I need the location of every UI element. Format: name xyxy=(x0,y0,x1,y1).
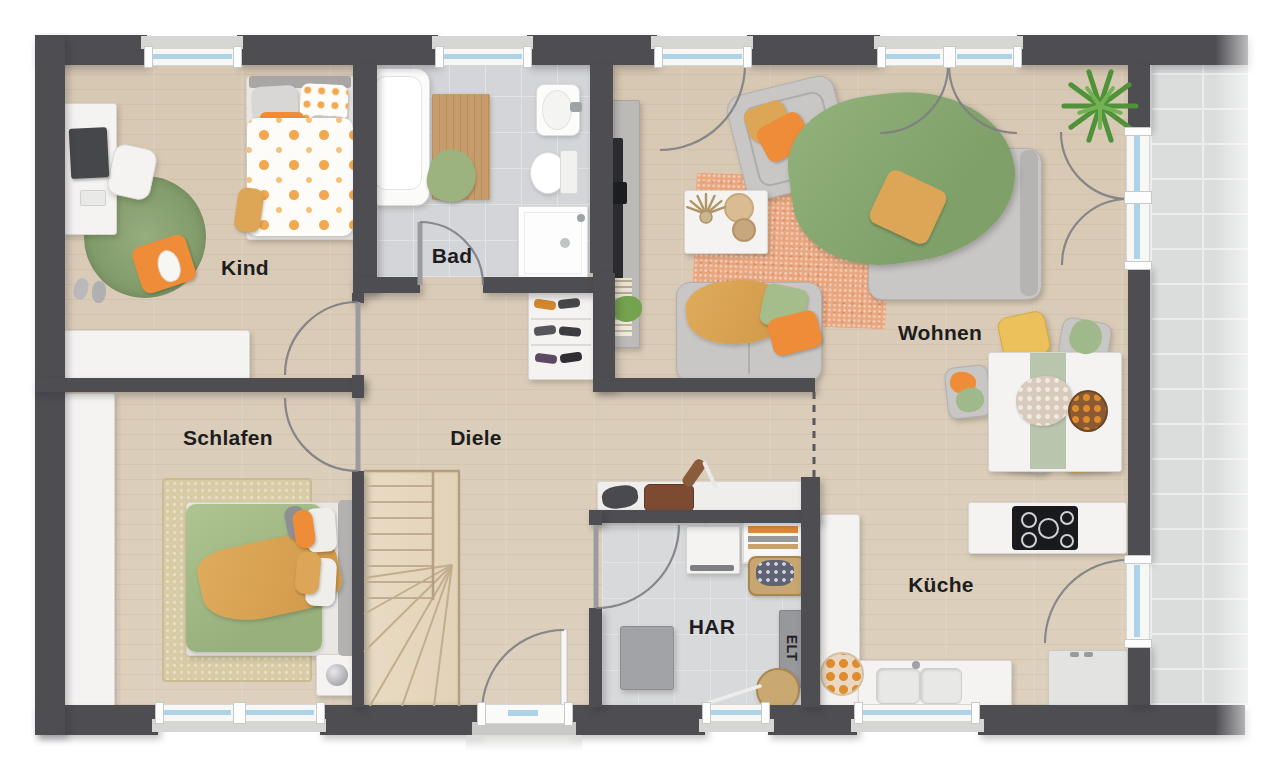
window-glass xyxy=(443,54,522,59)
door-glass xyxy=(662,54,742,59)
window-cap xyxy=(155,702,164,724)
shoe-shelf-line xyxy=(531,344,591,346)
wall-bad-south xyxy=(353,277,420,293)
wall xyxy=(1128,643,1150,705)
floor-plan: Kind Bad Wohnen Schlafen Diele HAR ELT K… xyxy=(0,0,1288,768)
laundry-gray xyxy=(748,536,798,542)
wall-kind-bad xyxy=(353,65,377,293)
window-glass xyxy=(957,54,1012,59)
sofa-backrest xyxy=(1020,150,1038,296)
wall-kind-schlafen xyxy=(35,378,364,392)
window-cap xyxy=(877,46,886,68)
wall xyxy=(320,705,480,735)
window-cap xyxy=(144,46,153,68)
wall xyxy=(768,705,857,735)
sink-basin xyxy=(542,90,572,130)
window-glass xyxy=(710,710,763,715)
utility-cabinet xyxy=(620,626,674,690)
burner xyxy=(1060,534,1074,548)
window-cap xyxy=(1124,555,1152,564)
wall xyxy=(237,35,438,65)
terrace-fade xyxy=(1215,0,1288,768)
window-cap xyxy=(477,702,486,726)
wall-bad-wohnen xyxy=(590,65,613,273)
fruit-bowl-table xyxy=(1068,390,1108,432)
laundry-orange xyxy=(748,526,798,533)
window-cap xyxy=(1124,261,1152,270)
entrance-step xyxy=(466,735,582,751)
window-mullion xyxy=(233,702,246,724)
shoe-shelf-line xyxy=(531,318,591,320)
kind-sideboard xyxy=(63,330,250,380)
shower-head xyxy=(577,214,585,222)
entrance-threshold xyxy=(472,722,576,736)
toilet-tank xyxy=(560,150,578,194)
room-label-kueche: Küche xyxy=(908,573,974,597)
table-lamp xyxy=(326,664,348,686)
handbag xyxy=(644,484,694,512)
window-glass xyxy=(862,710,973,715)
window-cap xyxy=(316,702,325,724)
dishwasher-handle xyxy=(1070,652,1079,657)
door-glass xyxy=(1134,136,1140,191)
entrance-door-glass xyxy=(508,710,538,716)
staircase xyxy=(364,470,460,706)
room-label-diele: Diele xyxy=(450,426,502,450)
shower-tray-inner xyxy=(524,212,582,274)
wall xyxy=(1128,65,1150,130)
fruit-bowl xyxy=(820,652,864,696)
wall xyxy=(527,35,657,65)
door-handles xyxy=(1124,191,1152,204)
wall xyxy=(978,705,1245,735)
desk-monitor xyxy=(69,127,110,179)
window-cap xyxy=(523,46,532,68)
room-label-har: HAR xyxy=(689,615,735,639)
burner xyxy=(1021,532,1037,548)
door-glass xyxy=(1134,565,1140,637)
wall xyxy=(568,705,705,735)
window-glass xyxy=(246,710,314,715)
shoe xyxy=(559,326,582,337)
dishwasher xyxy=(1048,650,1128,709)
window-cap xyxy=(233,46,242,68)
window-glass xyxy=(885,54,940,59)
wall-wohnen-south xyxy=(593,378,815,392)
wall-har-north xyxy=(593,510,820,523)
burner xyxy=(1060,511,1074,525)
kind-duvet xyxy=(247,118,353,236)
room-label-bad: Bad xyxy=(432,244,473,268)
wall xyxy=(1128,265,1150,560)
window-cap xyxy=(564,702,573,726)
room-label-schlafen: Schlafen xyxy=(183,426,273,450)
wall-stair xyxy=(352,471,364,707)
sink-right xyxy=(920,668,962,704)
shower-drain xyxy=(560,238,570,248)
window-cap xyxy=(1124,639,1152,648)
room-label-wohnen: Wohnen xyxy=(898,321,982,345)
window-cap xyxy=(1013,46,1022,68)
wall-har-west xyxy=(589,510,602,525)
sink-left xyxy=(876,668,920,704)
bed-pillow-mustard xyxy=(294,551,322,595)
door-glass xyxy=(1134,203,1140,259)
wall-har-east xyxy=(801,477,820,707)
window-cap xyxy=(1124,127,1152,136)
wall-diele-wohnen xyxy=(593,273,615,390)
wall xyxy=(747,35,880,65)
window-cap xyxy=(971,702,980,724)
coffee-table-tray-small xyxy=(732,218,756,242)
window-glass xyxy=(163,710,231,715)
window-cap xyxy=(654,46,663,68)
desk-keyboard xyxy=(80,190,106,206)
window-cap xyxy=(743,46,752,68)
sink-faucet xyxy=(570,102,582,112)
wall xyxy=(1017,35,1248,65)
wall-stub xyxy=(352,293,364,303)
wall-bad-south xyxy=(483,277,593,293)
bathtub-inner xyxy=(374,76,422,190)
burner xyxy=(1021,512,1037,528)
window-cap xyxy=(435,46,444,68)
room-label-elt: ELT xyxy=(784,635,800,661)
wall-stub xyxy=(352,375,364,398)
dishwasher-handle xyxy=(1084,652,1093,657)
wardrobe xyxy=(62,393,115,707)
laundry-clothes xyxy=(756,560,794,586)
window-cap xyxy=(854,702,863,724)
window-mullion xyxy=(943,46,956,68)
window-cap xyxy=(702,702,711,724)
kitchen-faucet xyxy=(912,661,920,669)
washing-machine-panel xyxy=(690,565,734,571)
laundry-tan xyxy=(748,544,798,549)
burner-large xyxy=(1038,518,1059,539)
room-label-kind: Kind xyxy=(221,256,269,280)
window-glass xyxy=(152,54,232,59)
window-cap xyxy=(761,702,770,724)
wall-har-west xyxy=(589,608,602,707)
